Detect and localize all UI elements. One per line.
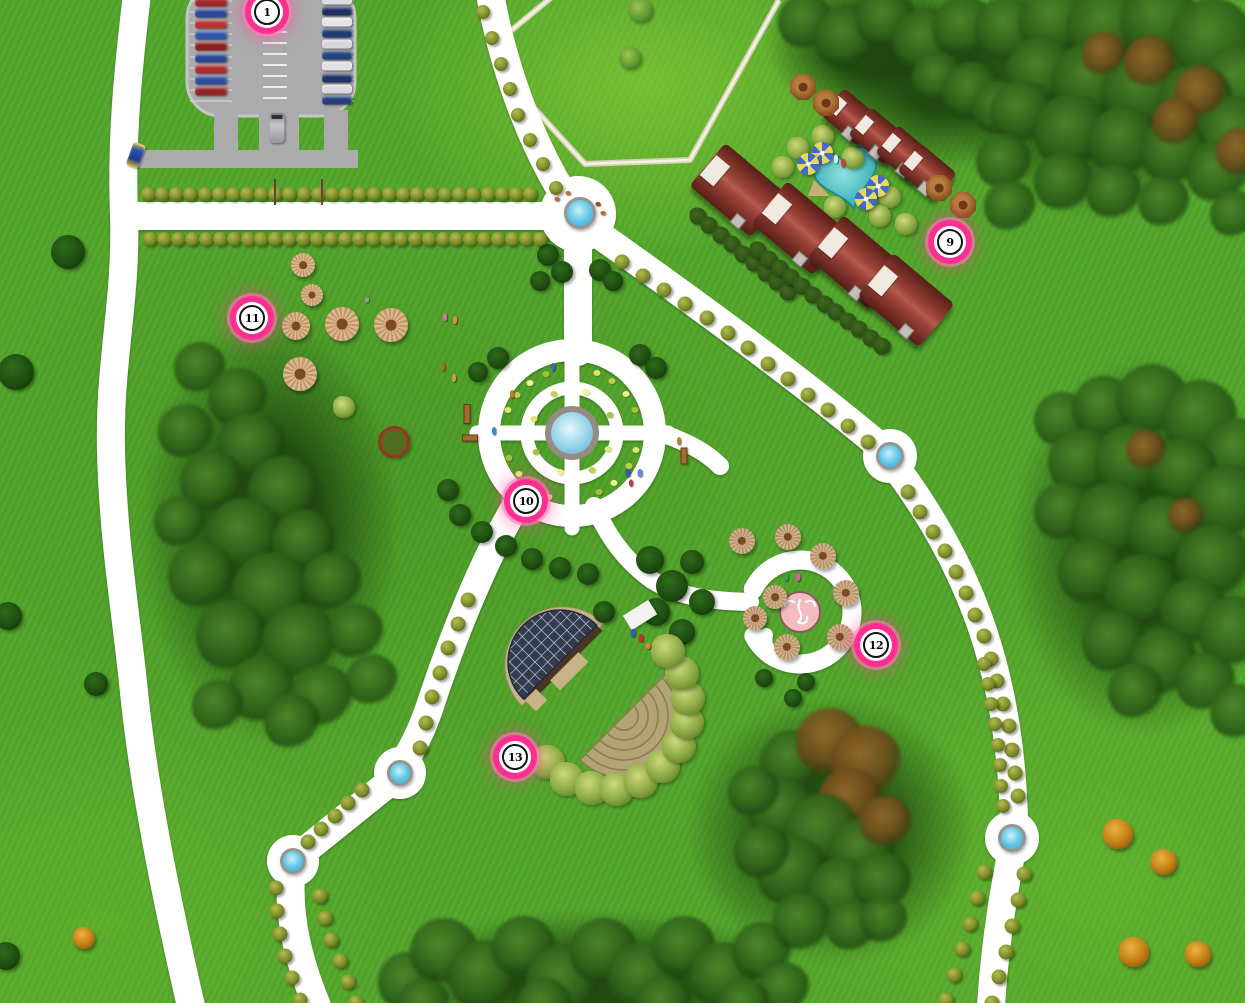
fountain-pond xyxy=(280,848,306,874)
flower-patch xyxy=(516,471,523,477)
thatch-parasol xyxy=(810,543,836,569)
evergreen-tree xyxy=(755,669,773,687)
stage xyxy=(481,583,615,717)
evergreen-tree xyxy=(593,601,615,623)
forest-cluster xyxy=(860,896,908,944)
hedge-loop-right-inner xyxy=(991,738,1005,752)
evergreen-tree xyxy=(449,504,471,526)
autumn-tree xyxy=(1119,937,1149,967)
marker-number: 9 xyxy=(937,229,963,255)
forest-cluster xyxy=(302,552,362,612)
amphitheater-loop-b xyxy=(303,782,390,852)
evergreen-tree xyxy=(603,271,623,291)
flower-patch xyxy=(589,467,596,473)
hedge-southwest-left xyxy=(278,949,293,964)
hedge-southwest-right xyxy=(332,953,347,968)
marker-number: 1 xyxy=(254,0,280,25)
person xyxy=(551,363,555,371)
forest-cluster xyxy=(1108,664,1164,720)
hedge-loop-south-left xyxy=(939,993,954,1003)
hedge-amphitheater-loop xyxy=(461,593,476,608)
hedge-row-bottom xyxy=(352,232,366,246)
hedge-row-top xyxy=(141,187,155,201)
hedge-loop-right-outer xyxy=(977,629,992,644)
thatch-parasol xyxy=(833,580,859,606)
shrub xyxy=(895,213,917,235)
hedge-row-bottom xyxy=(408,232,422,246)
forest-cluster xyxy=(1086,164,1142,220)
hedge-loop-right-inner xyxy=(988,717,1002,731)
person xyxy=(626,469,631,477)
forest-cluster xyxy=(860,796,912,848)
hedge-row-top xyxy=(424,187,438,201)
car xyxy=(322,29,352,38)
hedge-row-top xyxy=(382,187,396,201)
fountain-pond xyxy=(998,824,1026,852)
hedge-row-top xyxy=(481,187,495,201)
person xyxy=(639,634,644,642)
hedge-row-bottom xyxy=(310,232,324,246)
hedge-row-bottom xyxy=(171,232,185,246)
hedge-row-top xyxy=(183,187,197,201)
hedge-loop-upper xyxy=(760,356,775,371)
bench xyxy=(464,404,471,424)
hedge-row-bottom xyxy=(463,232,477,246)
map-marker-10[interactable]: 10 xyxy=(510,485,542,517)
car xyxy=(322,62,352,71)
hedge-loop-upper xyxy=(657,283,672,298)
flower-patch xyxy=(505,407,512,413)
evergreen-tree xyxy=(521,548,543,570)
forest-cluster xyxy=(728,766,780,818)
flower-patch xyxy=(583,389,590,395)
flower-patch xyxy=(596,489,603,495)
hedge-row-bottom xyxy=(394,232,408,246)
car xyxy=(195,9,227,18)
forest-cluster xyxy=(1034,152,1094,212)
hedge-loop-right-inner xyxy=(993,758,1007,772)
flower-patch xyxy=(623,391,630,397)
map-marker-13[interactable]: 13 xyxy=(499,741,531,773)
evergreen-tree xyxy=(437,479,459,501)
evergreen-tree xyxy=(577,563,599,585)
forest-cluster xyxy=(1124,36,1176,88)
hedge-row-top xyxy=(495,187,509,201)
person xyxy=(452,374,456,382)
hedge-loop-south-right xyxy=(991,970,1006,985)
flower-patch xyxy=(514,392,521,398)
hedge-row-top xyxy=(226,187,240,201)
hedge-row-bottom xyxy=(436,232,450,246)
evergreen-tree xyxy=(495,535,517,557)
beach-umbrella xyxy=(855,188,877,210)
flower-patch xyxy=(609,378,616,384)
hedge-amphitheater-loop xyxy=(418,715,433,730)
gazebo xyxy=(926,175,952,201)
hedge-row-top xyxy=(396,187,410,201)
car xyxy=(195,76,227,85)
green-tree xyxy=(628,0,652,22)
autumn-tree xyxy=(73,927,95,949)
hedge-loop-right-outer xyxy=(938,544,953,559)
hedge-row-top xyxy=(282,187,296,201)
thatch-parasol xyxy=(743,606,767,630)
thatch-parasol xyxy=(291,253,315,277)
evergreen-tree xyxy=(784,689,802,707)
hedge-row-top xyxy=(155,187,169,201)
hedge-row-top xyxy=(212,187,226,201)
hedge-row-top xyxy=(254,187,268,201)
person xyxy=(677,437,681,445)
person xyxy=(834,155,838,164)
hedge-row-bottom xyxy=(338,232,352,246)
thatch-parasol xyxy=(827,624,853,650)
flower-patch xyxy=(527,380,534,386)
hedge-southwest-right xyxy=(324,932,339,947)
hedge-loop-south-left xyxy=(970,890,985,905)
flower-patch xyxy=(533,449,540,455)
flower-patch xyxy=(546,494,553,500)
hedge-between-ponds xyxy=(301,835,316,850)
hedge-row-bottom xyxy=(227,232,241,246)
park-map: 1910111213 xyxy=(0,0,1245,1003)
hedge-row-bottom xyxy=(296,232,310,246)
hedge-loop-right-inner xyxy=(981,677,995,691)
hedge-southwest-left xyxy=(269,881,284,896)
evergreen-tree xyxy=(645,357,667,379)
hedge-loop-upper xyxy=(781,371,796,386)
thatch-parasol xyxy=(374,308,408,342)
evergreen-tree xyxy=(636,546,664,574)
hedge-row-bottom xyxy=(519,232,533,246)
hedge-loop-upper xyxy=(636,269,651,284)
hedge-loop-upper xyxy=(841,419,856,434)
hedge-row-bottom xyxy=(268,232,282,246)
hedge-row-top xyxy=(438,187,452,201)
hedge-row-top xyxy=(523,187,537,201)
forest-cluster xyxy=(1082,32,1126,76)
hedge-loop-upper xyxy=(821,403,836,418)
hedge-entry-path xyxy=(523,133,537,147)
thatch-parasol xyxy=(729,528,755,554)
thatch-parasol xyxy=(763,585,787,609)
hedge-southwest-left xyxy=(270,904,285,919)
hedge-entry-path xyxy=(536,157,550,171)
hedge-loop-upper xyxy=(720,325,735,340)
hedge-loop-south-right xyxy=(1005,918,1020,933)
thatch-parasol xyxy=(301,284,323,306)
hedge-loop-south-left xyxy=(955,942,970,957)
hedge-loop-right-outer xyxy=(1007,765,1022,780)
hedge-row-top xyxy=(169,187,183,201)
hedge-southwest-left xyxy=(272,926,287,941)
person xyxy=(631,629,636,637)
evergreen-tree xyxy=(656,570,688,602)
flower-patch xyxy=(506,455,513,461)
flower-patch xyxy=(611,480,618,486)
flower-patch xyxy=(531,416,538,422)
hedge-loop-upper xyxy=(615,255,630,270)
car xyxy=(322,74,352,83)
hedge-row-bottom xyxy=(199,232,213,246)
hedge-row-bottom xyxy=(185,232,199,246)
car xyxy=(195,54,227,63)
shrub xyxy=(842,147,864,169)
hedge-row-bottom xyxy=(157,232,171,246)
person xyxy=(443,313,447,321)
hedge-amphitheater-loop xyxy=(425,690,440,705)
hedge-loop-south-left xyxy=(977,865,992,880)
person xyxy=(492,427,496,435)
thatch-parasol xyxy=(283,357,317,391)
forest-cluster xyxy=(1126,430,1166,470)
hedge-entry-path xyxy=(549,181,563,195)
forest-cluster xyxy=(1138,176,1190,228)
hedge-southwest-right xyxy=(340,974,355,989)
car xyxy=(195,20,227,29)
hedge-between-ponds xyxy=(314,821,329,836)
autumn-tree xyxy=(1103,819,1133,849)
central-fountain xyxy=(545,406,599,460)
car xyxy=(322,51,352,60)
hedge-loop-upper xyxy=(861,435,876,450)
hedge-loop-upper xyxy=(740,341,755,356)
thatch-parasol xyxy=(325,307,359,341)
gazebo xyxy=(790,74,816,100)
map-marker-9[interactable]: 9 xyxy=(934,226,966,258)
thatch-parasol xyxy=(775,524,801,550)
hedge-amphitheater-loop xyxy=(432,665,447,680)
car xyxy=(195,65,227,74)
hedge-row-top xyxy=(452,187,466,201)
van xyxy=(270,113,285,143)
hedge-entry-path xyxy=(476,5,490,19)
evergreen-tree xyxy=(530,271,550,291)
fountain-pond xyxy=(876,442,904,470)
bench xyxy=(681,448,688,465)
flower-patch xyxy=(543,371,550,377)
green-tree xyxy=(619,47,641,69)
forest-cluster xyxy=(734,824,790,880)
forest-cluster xyxy=(154,496,206,548)
person xyxy=(601,211,606,215)
thatch-parasol xyxy=(282,312,310,340)
flower-patch xyxy=(557,469,564,475)
hedge-row-top xyxy=(353,187,367,201)
hedge-loop-right-outer xyxy=(1011,789,1026,804)
shrub xyxy=(772,156,794,178)
hedge-loop-right-inner xyxy=(977,657,991,671)
hedge-loop-right-inner xyxy=(984,697,998,711)
gazebo xyxy=(950,192,976,218)
park-map-screenshot: 1910111213 xyxy=(0,0,1245,1003)
forest-cluster xyxy=(1152,98,1200,146)
hedge-entry-path xyxy=(485,31,499,45)
car xyxy=(322,7,352,16)
person xyxy=(365,298,369,303)
person xyxy=(555,197,560,201)
bench xyxy=(462,435,478,442)
car xyxy=(195,0,227,7)
gazebo xyxy=(813,90,839,116)
hedge-entry-path xyxy=(494,57,508,71)
shrub xyxy=(333,396,355,418)
hedge-amphitheater-loop xyxy=(413,741,428,756)
hedge-loop-south-left xyxy=(947,967,962,982)
hedge-southwest-left xyxy=(285,971,300,986)
car xyxy=(322,18,352,27)
evergreen-tree xyxy=(84,672,108,696)
hedge-loop-south-left xyxy=(963,916,978,931)
hedge-loop-right-outer xyxy=(1001,719,1016,734)
fountain-pond xyxy=(387,760,413,786)
hedge-loop-right-outer xyxy=(949,564,964,579)
car xyxy=(322,40,352,49)
beach-umbrella xyxy=(797,153,819,175)
signpost xyxy=(274,179,276,205)
vine-row-b xyxy=(874,338,891,355)
flower-patch xyxy=(594,370,601,376)
hedge-loop-right-outer xyxy=(1004,742,1019,757)
hedge-loop-right-inner xyxy=(994,779,1008,793)
forest-cluster xyxy=(346,654,398,706)
hedge-row-bottom xyxy=(254,232,268,246)
hedge-entry-path xyxy=(511,108,525,122)
autumn-tree xyxy=(1185,941,1211,967)
hedge-between-ponds xyxy=(355,783,370,798)
hedge-row-top xyxy=(198,187,212,201)
evergreen-tree xyxy=(689,589,715,615)
hedge-between-ponds xyxy=(327,808,342,823)
evergreen-tree xyxy=(549,557,571,579)
forest-cluster xyxy=(192,680,244,732)
hedge-row-top xyxy=(297,187,311,201)
hedge-amphitheater-loop xyxy=(440,640,455,655)
hedge-loop-south-right xyxy=(1011,892,1026,907)
evergreen-tree xyxy=(468,362,488,382)
hedge-loop-south-right xyxy=(1017,867,1032,882)
person xyxy=(638,469,643,477)
evergreen-tree xyxy=(551,261,573,283)
hedge-amphitheater-loop xyxy=(450,616,465,631)
thatch-parasol xyxy=(774,634,800,660)
hedge-row-bottom xyxy=(533,232,547,246)
map-marker-12[interactable]: 12 xyxy=(860,629,892,661)
flower-patch xyxy=(607,412,614,418)
car xyxy=(322,85,352,94)
marker-number: 13 xyxy=(502,744,528,770)
hedge-row-bottom xyxy=(366,232,380,246)
hedge-loop-right-outer xyxy=(901,485,916,500)
flower-patch xyxy=(633,447,640,453)
hedge-row-bottom xyxy=(213,232,227,246)
hedge-row-top xyxy=(509,187,523,201)
forest-cluster xyxy=(264,694,320,750)
person xyxy=(841,159,845,168)
evergreen-tree xyxy=(797,673,815,691)
hedge-loop-right-outer xyxy=(925,524,940,539)
flower-patch xyxy=(605,446,612,452)
hedge-row-bottom xyxy=(422,232,436,246)
flower-bed xyxy=(378,426,410,458)
hedge-row-bottom xyxy=(380,232,394,246)
car xyxy=(322,0,352,5)
hedge-southwest-left xyxy=(293,993,308,1003)
car xyxy=(195,31,227,40)
hedge-row-bottom xyxy=(449,232,463,246)
person xyxy=(510,390,514,398)
signpost xyxy=(321,179,323,205)
person xyxy=(796,573,801,581)
person xyxy=(596,202,601,206)
person xyxy=(629,480,633,487)
hedge-entry-path xyxy=(503,82,517,96)
car xyxy=(195,42,227,51)
flower-patch xyxy=(632,407,639,413)
car xyxy=(195,87,227,96)
hedge-loop-right-outer xyxy=(913,504,928,519)
hedge-row-top xyxy=(325,187,339,201)
hedge-row-bottom xyxy=(505,232,519,246)
hedge-row-bottom xyxy=(324,232,338,246)
hedge-row-bottom xyxy=(143,232,157,246)
shrub xyxy=(869,205,891,227)
hedge-row-top xyxy=(367,187,381,201)
map-marker-11[interactable]: 11 xyxy=(236,302,268,334)
person xyxy=(441,363,445,371)
fountain-pond xyxy=(564,197,596,229)
evergreen-tree xyxy=(680,550,704,574)
hedge-row-bottom xyxy=(491,232,505,246)
hedge-row-top xyxy=(466,187,480,201)
hedge-southwest-right xyxy=(313,889,328,904)
person xyxy=(784,573,789,581)
hedge-row-bottom xyxy=(477,232,491,246)
hedge-loop-right-inner xyxy=(996,799,1010,813)
marker-number: 12 xyxy=(863,632,889,658)
hedge-row-bottom xyxy=(282,232,296,246)
person xyxy=(646,643,651,649)
shrub xyxy=(651,634,685,668)
hedge-row-top xyxy=(410,187,424,201)
forest-cluster xyxy=(1168,498,1204,534)
person xyxy=(453,316,457,324)
forest-cluster xyxy=(984,180,1036,232)
hedge-southwest-right xyxy=(318,910,333,925)
hedge-row-top xyxy=(339,187,353,201)
hedge-row-bottom xyxy=(241,232,255,246)
autumn-tree xyxy=(1151,849,1177,875)
forest-cluster xyxy=(772,892,832,952)
hedge-loop-right-outer xyxy=(968,607,983,622)
person xyxy=(566,191,571,195)
hedge-loop-upper xyxy=(801,387,816,402)
evergreen-tree xyxy=(51,235,85,269)
flower-patch xyxy=(551,391,558,397)
entry-path xyxy=(490,0,562,192)
hedge-loop-upper xyxy=(699,311,714,326)
hedge-between-ponds xyxy=(341,795,356,810)
hedge-loop-upper xyxy=(678,297,693,312)
hedge-row-top xyxy=(240,187,254,201)
evergreen-tree xyxy=(471,521,493,543)
evergreen-tree xyxy=(487,347,509,369)
forest-cluster xyxy=(328,604,384,660)
marker-number: 10 xyxy=(513,488,539,514)
marker-number: 11 xyxy=(239,305,265,331)
hedge-loop-right-outer xyxy=(958,586,973,601)
hedge-loop-south-right xyxy=(998,944,1013,959)
